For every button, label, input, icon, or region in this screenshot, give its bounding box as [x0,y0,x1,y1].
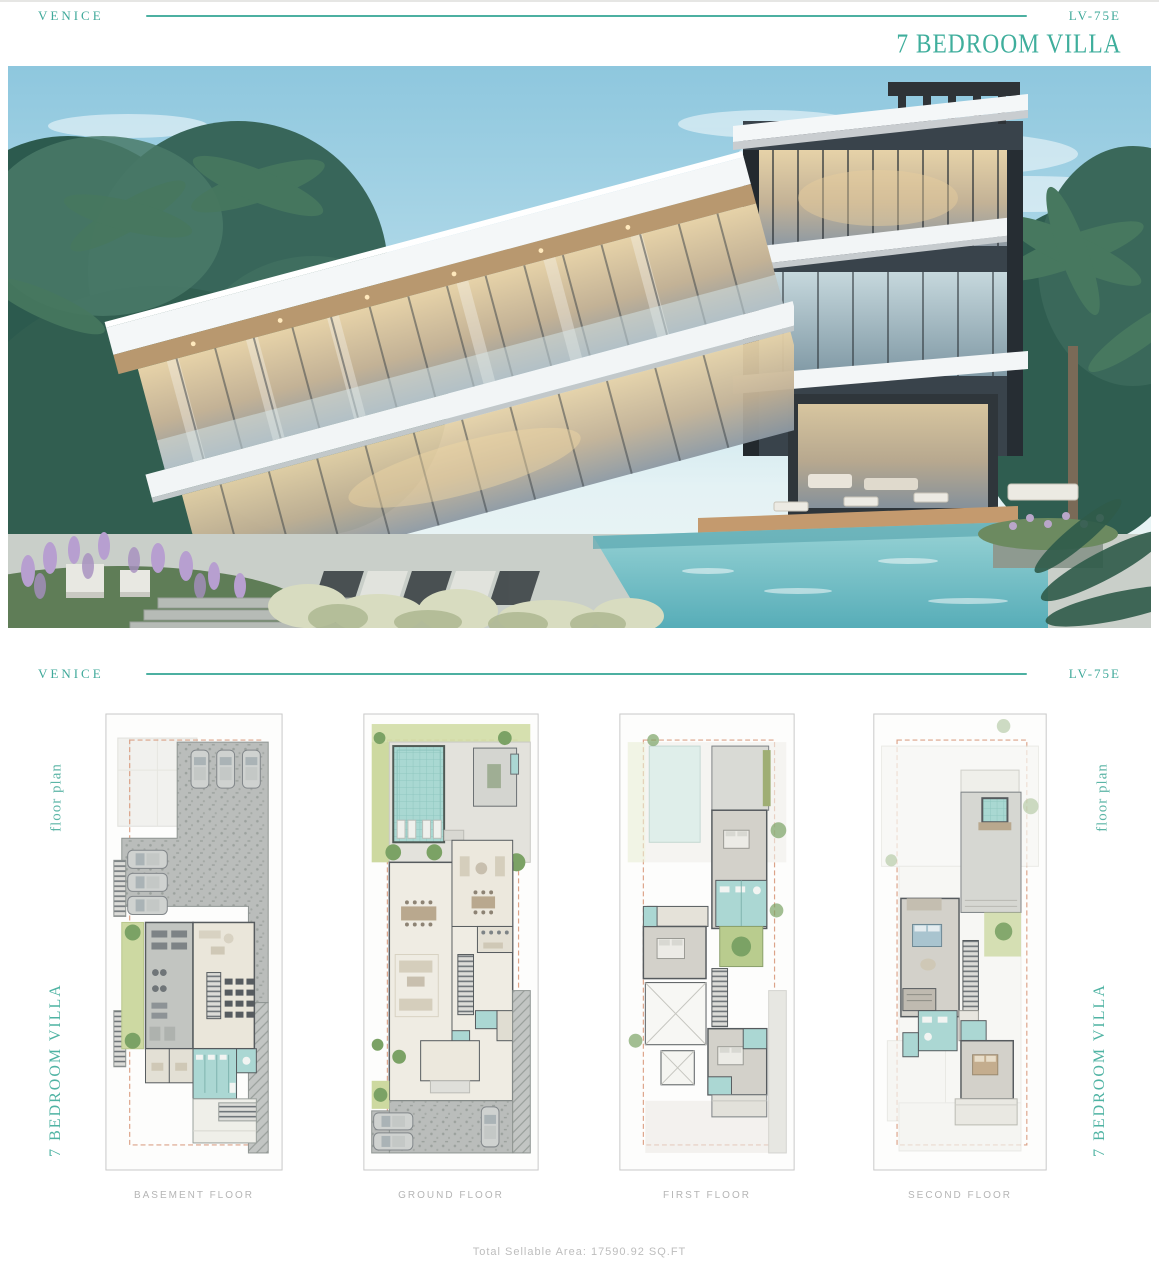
floor-plan-basement [100,710,288,1176]
floor-plan-second [868,710,1052,1176]
side-label-villa-left: 7 BEDROOM VILLA [47,970,65,1170]
floor-plan-ground [358,710,544,1176]
caption-second-floor: SECOND FLOOR [868,1190,1052,1201]
model-code: LV-75E [1069,8,1121,24]
caption-ground-floor: GROUND FLOOR [358,1190,544,1201]
brand-text: VENICE [38,8,104,24]
header-rule [146,15,1027,17]
caption-first-floor: FIRST FLOOR [614,1190,800,1201]
caption-basement-floor: BASEMENT FLOOR [100,1190,288,1201]
side-label-floor-plan-right: floor plan [1095,728,1112,868]
header-top: VENICE LV-75E [38,8,1121,24]
total-sellable-area: Total Sellable Area: 17590.92 SQ.FT [0,1246,1159,1258]
header-rule [146,673,1027,675]
page-title: 7 BEDROOM VILLA [897,30,1122,60]
floor-plan-first [614,710,800,1176]
header-floorplans: VENICE LV-75E [38,666,1121,682]
side-label-villa-right: 7 BEDROOM VILLA [1091,970,1109,1170]
villa-render-image [8,66,1151,628]
brochure-page: VENICE LV-75E 7 BEDROOM VILLA [0,0,1159,1282]
side-label-floor-plan-left: floor plan [49,728,66,868]
model-code: LV-75E [1069,666,1121,682]
brand-text: VENICE [38,666,104,682]
